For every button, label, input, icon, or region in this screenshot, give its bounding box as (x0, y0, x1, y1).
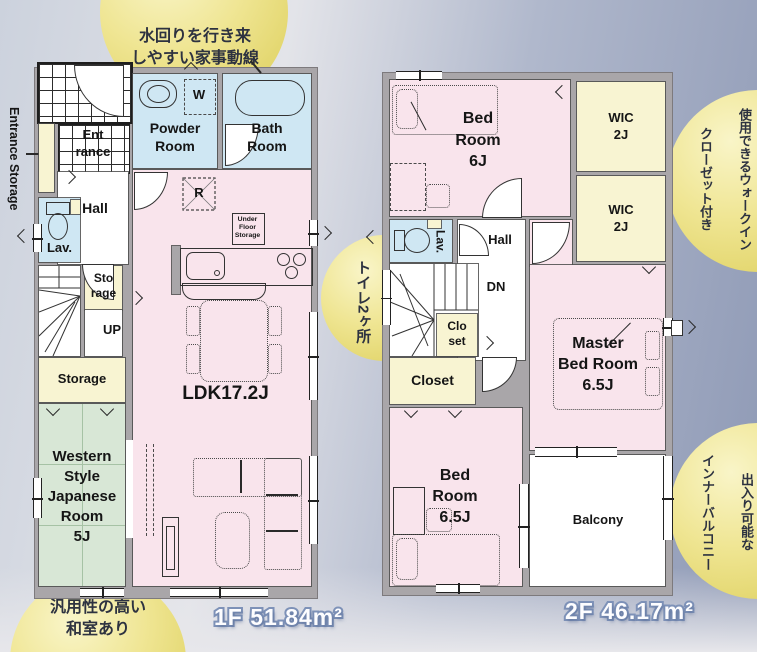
vent-arrow-icon (318, 226, 332, 240)
chair-icon (426, 184, 450, 208)
floorplan-canvas: 水回りを行き来 しやすい家事動線 トイレ2ヶ所 お部屋をすっきりと 使用できるウ… (0, 0, 757, 652)
window (309, 456, 318, 544)
powder-sink-bowl-icon (147, 85, 170, 103)
badge-balcony-line3: インナーバルコニー (698, 437, 718, 587)
sofa-cushion-line (266, 530, 298, 532)
bath-room-label: Bath Room (223, 120, 311, 156)
wic-top-label: WIC 2J (577, 110, 665, 143)
kitchen-wall-stub (172, 246, 180, 294)
sofa-cushion-line (266, 494, 298, 496)
window (80, 588, 124, 597)
kitchen-bar (182, 283, 266, 300)
entrance-label: Ent rance (58, 127, 128, 160)
window (309, 312, 318, 400)
vent-arrow-icon (17, 229, 31, 243)
chair-icon (268, 306, 282, 336)
sliding-door-gap (126, 440, 133, 538)
window (436, 584, 480, 593)
kitchen-sink-icon (186, 252, 225, 280)
stove-burner-icon (293, 253, 306, 266)
badge-wic-text: お部屋をすっきりと 使用できるウォークイン クローゼット付き (676, 100, 757, 258)
toilet-bowl-2f-icon (404, 228, 430, 253)
bedroom-65j-label: Bed Room 6.5J (395, 466, 515, 528)
stairs-1f-icon (39, 266, 80, 356)
badge-inner-balcony-text: 2部屋より 出入り可能な インナーバルコニー (678, 437, 757, 587)
badge-wic-line3: クローゼット付き (696, 100, 716, 258)
entrance-storage-label: Entrance Storage (6, 96, 22, 222)
japanese-room-label: Western Style Japanese Room 5J (39, 447, 125, 547)
pillow-icon (396, 538, 418, 580)
dn-label: DN (478, 279, 514, 296)
balcony-label: Balcony (560, 512, 636, 529)
stove-burner-icon (277, 253, 290, 266)
window (396, 71, 442, 80)
coffee-table-icon (215, 512, 250, 569)
up-label: UP (92, 322, 132, 339)
tv-icon (166, 526, 175, 570)
ldk-label: LDK17.2J (163, 382, 288, 406)
badge-tatami-text: 汎用性の高い 和室あり (18, 597, 178, 640)
storage-label: Storage (39, 371, 125, 388)
lav-1f-label: Lav. (39, 240, 80, 257)
hall-1f-label: Hall (70, 200, 120, 218)
sofa-icon (264, 458, 302, 570)
badge-housework-line-text: 水回りを行き来 しやすい家事動線 (110, 26, 280, 69)
floor1-area-label: 1F 51.84m² (214, 604, 343, 631)
chair-icon (186, 344, 200, 374)
badge-two-toilets-text: トイレ2ヶ所 (352, 243, 372, 361)
kitchen-service-door (309, 220, 318, 246)
balcony-sliding-window (519, 484, 529, 568)
toilet-bowl-1f-icon (48, 213, 68, 240)
dining-table-icon (200, 300, 268, 382)
stove-burner-icon (285, 266, 298, 279)
badge-balcony-line2: 出入り可能な (737, 437, 757, 587)
fridge-label: R (187, 185, 211, 202)
badge-wic-line2: 使用できるウォークイン (735, 100, 755, 258)
chair-icon (186, 306, 200, 336)
sink-drain-icon (214, 270, 220, 276)
chair-icon (268, 344, 282, 374)
vent-arrow-icon (682, 320, 696, 334)
balcony-opening (663, 456, 673, 540)
under-floor-storage-label: Under Floor Storage (232, 216, 263, 240)
window (382, 270, 391, 325)
window (170, 588, 268, 597)
sofa-cushion-line (240, 460, 242, 493)
balcony-sliding-window (535, 447, 617, 457)
master-window-box (671, 320, 683, 336)
floor2-area-label: 2F 46.17m² (565, 598, 694, 625)
hall-2f-label: Hall (478, 232, 522, 249)
powder-room-label: Powder Room (133, 120, 217, 156)
storage-small-label: Sto rage (85, 271, 122, 302)
bathtub-icon (235, 80, 305, 116)
bedroom-6j-label: Bed Room 6J (428, 108, 528, 173)
master-bedroom-label: Master Bed Room 6.5J (533, 334, 663, 396)
closet-label: Closet (390, 372, 475, 390)
washer-label: W (184, 87, 214, 104)
wic-bottom-label: WIC 2J (577, 202, 665, 235)
desk-icon (390, 163, 426, 211)
closet-small-label: Clo set (437, 319, 477, 350)
sliding-door-track (146, 444, 154, 536)
entrance-storage-cabinet (39, 124, 54, 192)
lav-2f-label: Lav. (432, 224, 447, 260)
